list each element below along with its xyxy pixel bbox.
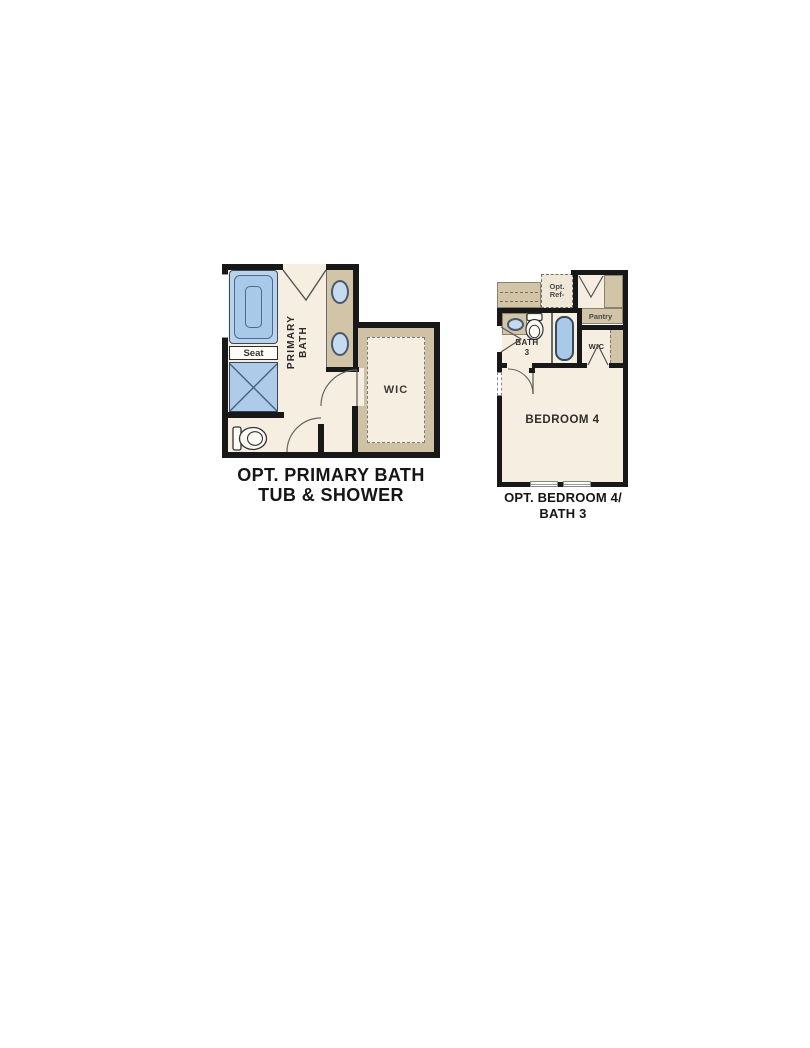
floorplan-sheet: WIC Seat PRIMARY BATH [0,0,810,1048]
primary-bath-caption: OPT. PRIMARY BATH TUB & SHOWER [222,466,440,505]
bath3-label: BATH 3 [505,338,549,357]
bedroom-side-window [497,372,502,396]
wic2-shelf [610,330,623,363]
wic-floor: WIC [367,337,425,443]
bedroom4-label: BEDROOM 4 [502,414,623,426]
wic2-label: WIC [583,342,610,351]
caption-line-2: TUB & SHOWER [222,486,440,506]
wall-right [623,270,628,487]
bathtub-rim [234,275,273,339]
pantry-floor [578,275,604,308]
caption-line-1: OPT. PRIMARY BATH [222,466,440,486]
vanity-counter [326,270,353,367]
toilet-room-wall [318,424,324,452]
tub-alcove-wall [551,313,553,363]
wall-top [571,270,628,275]
sink-2 [331,332,349,356]
bath-entry-opening [283,264,326,270]
sink-1 [331,280,349,304]
bathtub [229,270,278,344]
bath3-tub [555,316,574,361]
shower-seat: Seat [229,346,278,360]
wall-wic2-top [582,325,628,330]
primary-bath-floorplan: WIC Seat PRIMARY BATH [222,258,440,460]
wall-pantry-left [573,270,578,310]
primary-bath-label: PRIMARY BATH [286,300,310,384]
wall-under-shower [222,412,284,418]
bedroom4-floorplan: Opt. Ref- Pantry [497,268,628,487]
pantry-label: Pantry [589,312,612,321]
opt-ref-space: Opt. Ref- [541,274,573,308]
shower [229,362,278,412]
bedroom-window-1 [530,481,558,487]
bedroom-door-opening [507,363,532,368]
wic-label: WIC [384,384,408,396]
wic-room: WIC [352,322,440,458]
wall-bath3-right [577,308,582,368]
bedroom4-caption: OPT. BEDROOM 4/ BATH 3 [489,490,637,521]
bath3-sink [507,318,524,331]
wall-bath3-top [497,308,582,313]
bath3-door-opening [497,326,502,352]
tub-window [222,274,228,338]
pantry-shelf-right [604,275,623,308]
kitchen-counter [497,282,541,308]
vanity-end-wall [326,367,359,372]
bathtub-basin [245,286,262,328]
pantry-shelf-band: Pantry [578,308,623,324]
seat-label: Seat [243,348,263,359]
wic-door-opening [348,368,364,406]
caption-line-1: OPT. BEDROOM 4/ [489,490,637,506]
wic2-door-opening [587,363,609,368]
bath3-sink-counter [502,313,527,335]
caption-line-2: BATH 3 [489,506,637,522]
bedroom-window-2 [563,481,591,487]
